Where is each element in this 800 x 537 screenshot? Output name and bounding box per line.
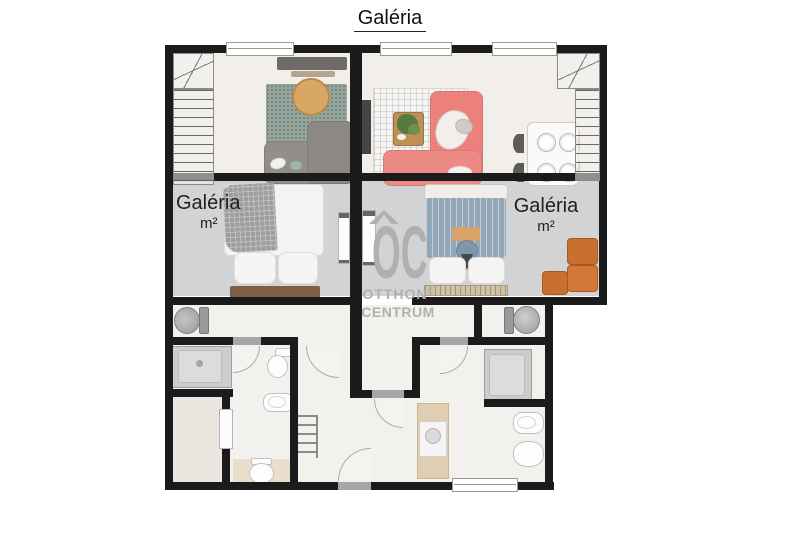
staircase-right-run: [575, 89, 600, 181]
toilet-wc-right-bowl: [513, 306, 540, 334]
sink-bath-right-basin: [517, 416, 536, 429]
wall-wc-left-bottom: [165, 337, 298, 345]
toilet-wc-left-tank: [199, 307, 209, 334]
window: [380, 42, 452, 56]
table-dish: [397, 134, 406, 140]
wall-wc-right-bottom: [412, 337, 546, 345]
room-label-left-unit: m²: [200, 216, 240, 231]
wall-gallery-bottom-left: [165, 297, 350, 305]
bidet-bath-right: [513, 441, 544, 467]
tv-cabinet: [277, 57, 347, 70]
wall-tv: [362, 100, 371, 154]
storage-door: [219, 409, 233, 449]
floor-plan-image: Galéria Galéria m²: [0, 0, 800, 537]
door-threshold: [372, 390, 404, 398]
watermark-otthon-centrum: OC OTTHON® CENTRUM: [356, 210, 440, 320]
bed-left-pillow: [234, 252, 276, 284]
tv-shelf: [291, 71, 335, 77]
door-threshold: [233, 337, 261, 345]
floor-storage-room: [173, 397, 222, 482]
bed-left-pillow: [278, 252, 318, 284]
door-threshold: [440, 337, 468, 345]
window: [492, 42, 557, 56]
wall-bath-left-right: [290, 337, 298, 490]
toilet-wc-left-bowl: [174, 307, 200, 334]
wall-shower-right-stub: [484, 399, 546, 407]
staircase-left-winder: [173, 53, 214, 89]
bed-right-pillow-tan: [452, 227, 480, 241]
wall-outer-left: [165, 45, 173, 490]
shower-right-tray: [489, 354, 525, 396]
floor-cushion-orange: [567, 238, 598, 265]
window: [226, 42, 294, 56]
dining-plate: [537, 133, 556, 152]
round-coffee-table: [292, 78, 330, 116]
sink-bath-left-basin: [268, 396, 286, 408]
wall-gallery-bottom-right: [412, 297, 607, 305]
watermark-reg-mark: ®: [427, 288, 433, 295]
shower-left-drain: [196, 360, 203, 367]
sofa-pillow-teal: [290, 161, 302, 170]
room-label-left-name: Galéria: [176, 193, 240, 213]
watermark-logo: OC: [372, 224, 414, 282]
wall-outer-right-lower: [545, 297, 553, 490]
room-label-left-gallery: Galéria m²: [176, 193, 240, 231]
staircase-right-winder: [557, 53, 600, 89]
entry-door-threshold: [338, 482, 371, 490]
floor-cushion-orange: [542, 271, 568, 295]
towel-radiator: [296, 415, 318, 458]
bed-right-pillow: [468, 257, 505, 284]
toilet-bath-left-bottom-bowl: [249, 463, 274, 484]
page-title: Galéria: [0, 7, 780, 32]
staircase-left-run: [173, 89, 214, 185]
page-title-text: Galéria: [354, 7, 426, 32]
room-label-right-gallery: Galéria m²: [512, 196, 580, 234]
wardrobe-left: [338, 212, 350, 264]
wall-wc-right-left: [474, 305, 482, 337]
floor-cushion-orange: [567, 265, 598, 292]
wall-sep-living-gallery: [165, 173, 607, 181]
watermark-line2: CENTRUM: [356, 304, 440, 320]
dining-chair-dark: [513, 134, 524, 153]
toilet-bath-left-bowl: [267, 355, 288, 378]
window: [452, 478, 518, 492]
plant-leaf: [408, 124, 420, 135]
bed-right-headboard: [424, 184, 508, 199]
room-label-right-name: Galéria: [512, 196, 580, 216]
wall-bath-right-left: [412, 337, 420, 398]
washing-machine-drum: [425, 428, 441, 444]
room-label-right-unit: m²: [512, 219, 580, 234]
